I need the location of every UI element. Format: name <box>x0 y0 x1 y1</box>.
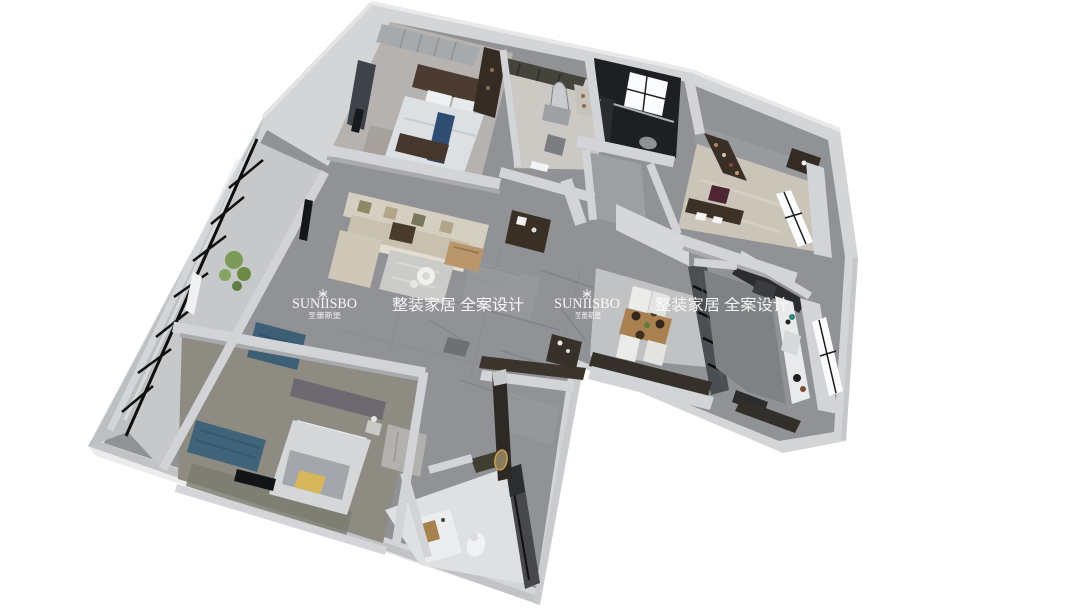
svg-text:圣蕾斯堡: 圣蕾斯堡 <box>308 310 342 320</box>
svg-text:整装家居 全案设计: 整装家居 全案设计 <box>392 296 524 314</box>
svg-text:SUNIISBO: SUNIISBO <box>554 296 620 312</box>
svg-text:SUNIISBO: SUNIISBO <box>292 296 357 312</box>
svg-text:圣蕾斯堡: 圣蕾斯堡 <box>575 310 601 320</box>
svg-text:整装家居 全案设计: 整装家居 全案设计 <box>655 296 789 314</box>
